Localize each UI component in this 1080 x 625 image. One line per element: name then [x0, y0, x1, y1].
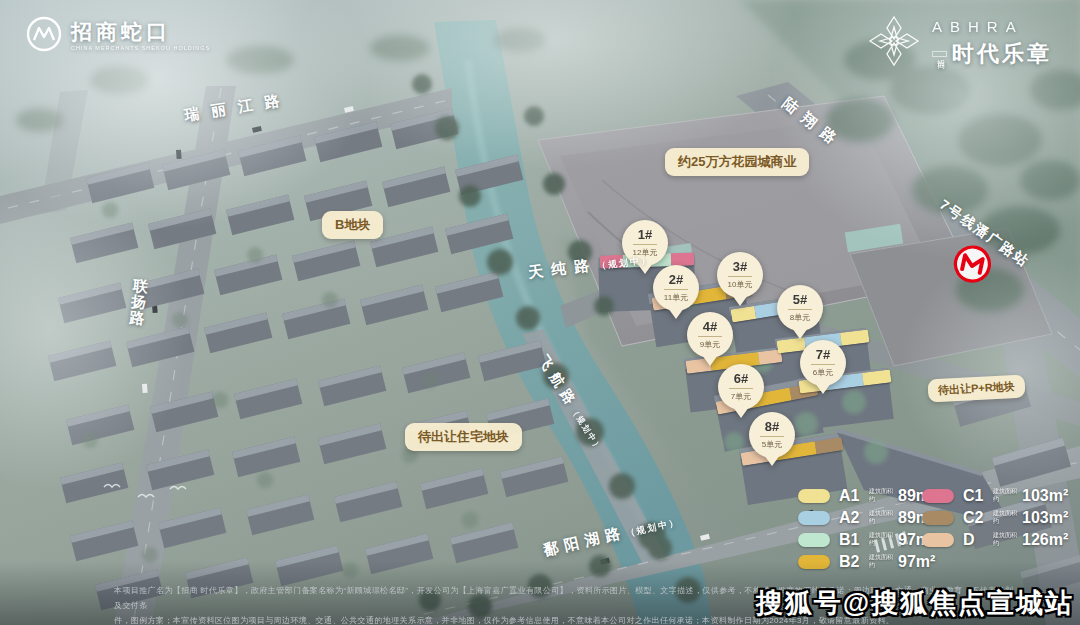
project-name: 时代乐章 [952, 39, 1052, 69]
developer-logo: 招商蛇口 CHINA MERCHANTS SHEKOU HOLDINGS [26, 16, 210, 56]
legend-swatch [798, 489, 830, 503]
developer-subtitle: CHINA MERCHANTS SHEKOU HOLDINGS [71, 45, 210, 51]
aerial-sitemap-poster: 1#12单元 2#11单元 3#10单元 4#9单元 5#8单元 6#7单元 7… [0, 0, 1080, 625]
legend-item-b1: B1建筑面积约97m² [798, 532, 935, 547]
legend-item-a1: A1建筑面积约89m² [798, 488, 935, 503]
developer-name: 招商蛇口 [71, 21, 210, 42]
building-no: 4# [698, 320, 722, 336]
legend-swatch [922, 533, 954, 547]
legend-item-b2: B2建筑面积约97m² [798, 554, 935, 569]
watermark: 搜狐号@搜狐焦点宣城站 [756, 585, 1074, 621]
project-logo: ABHRA 招商 时代乐章 [867, 14, 1052, 72]
building-units: 10单元 [728, 279, 753, 290]
legend-swatch [798, 511, 830, 525]
legend-item-c2: C2建筑面积约103m² [922, 510, 1068, 525]
legend-item-d: D建筑面积约126m² [922, 532, 1068, 547]
legend-swatch [922, 489, 954, 503]
building-pin-7: 7#6单元 [800, 340, 846, 386]
building-pin-3: 3#10单元 [717, 252, 763, 298]
building-units: 5单元 [762, 439, 782, 450]
legend-column-right: C1建筑面积约103m² C2建筑面积约103m² D建筑面积约126m² [922, 488, 1068, 547]
legend-column-left: A1建筑面积约89m² A2建筑面积约89m² B1建筑面积约97m² B2建筑… [798, 488, 935, 569]
building-no: 7# [811, 348, 835, 364]
building-no: 3# [728, 260, 752, 276]
building-pin-6: 6#7单元 [718, 364, 764, 410]
building-pin-2: 2#11单元 [653, 265, 699, 311]
legend-item-c1: C1建筑面积约103m² [922, 488, 1068, 503]
building-units: 6单元 [813, 367, 833, 378]
building-units: 8单元 [790, 312, 810, 323]
building-no: 6# [729, 372, 753, 388]
building-units: 9单元 [700, 339, 720, 350]
legend-swatch [798, 555, 830, 569]
legend-swatch [798, 533, 830, 547]
building-no: 2# [664, 273, 688, 289]
building-units: 11单元 [664, 292, 688, 303]
project-name-prefix: 招商 [932, 51, 947, 57]
building-no: 8# [760, 420, 784, 436]
developer-logo-icon [26, 16, 62, 56]
building-pin-4: 4#9单元 [687, 312, 733, 358]
building-pin-8: 8#5单元 [749, 412, 795, 458]
area-label-plot-b: B地块 [322, 211, 383, 239]
left-building-clusters [48, 109, 568, 611]
building-no: 5# [788, 293, 812, 309]
legend-swatch [922, 511, 954, 525]
project-emblem-icon [867, 14, 921, 72]
legend-item-a2: A2建筑面积约89m² [798, 510, 935, 525]
building-units: 7单元 [731, 391, 751, 402]
area-label-mall: 约25万方花园城商业 [665, 148, 809, 176]
building-no: 1# [633, 228, 657, 244]
area-label-residential-pending: 待出让住宅地块 [405, 423, 522, 451]
project-name-latin: ABHRA [932, 18, 1052, 35]
building-pin-5: 5#8单元 [777, 285, 823, 331]
